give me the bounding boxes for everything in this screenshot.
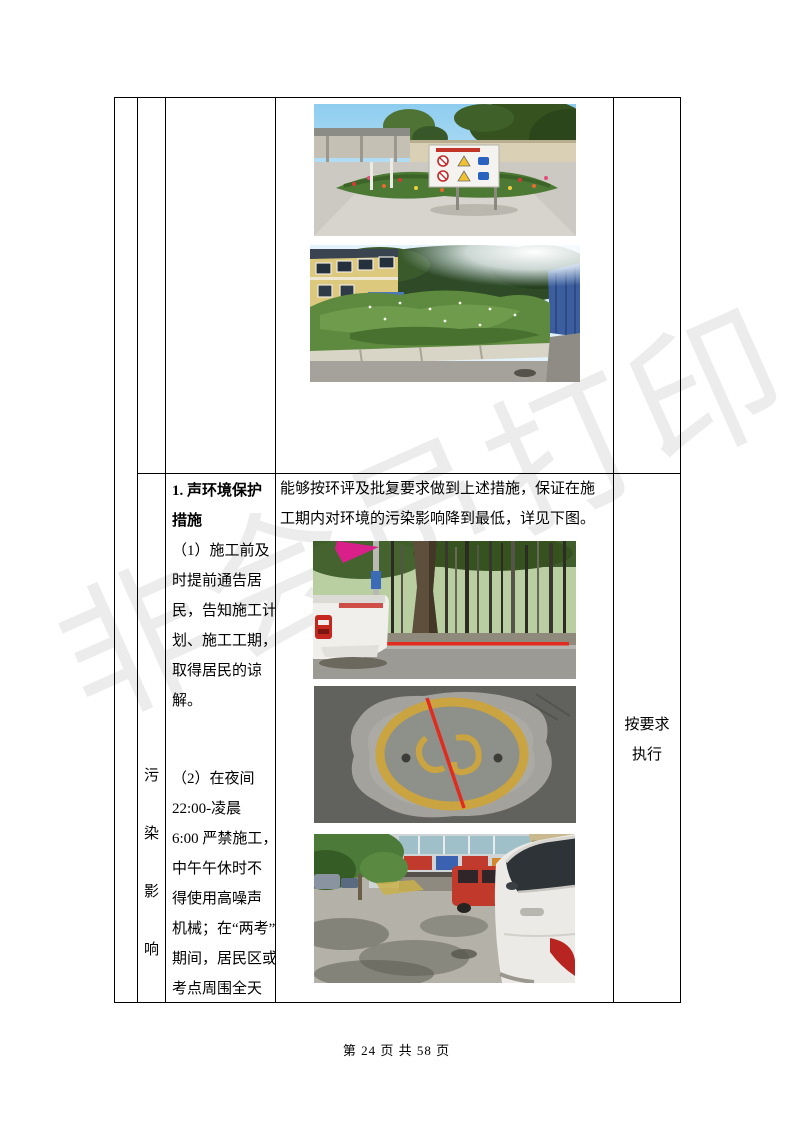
measures-item2-line: 6:00 严禁施工， xyxy=(172,824,272,854)
measures-heading-line: 1. 声环境保护 xyxy=(172,476,272,506)
measures-item1-line: 解。 xyxy=(172,686,272,716)
table-cell-empty-r1c2 xyxy=(138,98,166,474)
vertical-label-char: 影 xyxy=(138,882,165,940)
measures-item2-line: 22:00-凌晨 xyxy=(172,794,272,824)
table-cell-photos-row1 xyxy=(276,98,614,474)
measures-item1-line: 时提前通告居 xyxy=(172,566,272,596)
page-footer: 第 24 页 共 58 页 xyxy=(0,1040,793,1059)
table-cell-status: 按要求 执行 xyxy=(614,474,680,1002)
measures-item2-line: 机械；在“两考” xyxy=(172,914,272,944)
status-line: 执行 xyxy=(614,740,680,770)
measures-item1-line: 取得居民的谅 xyxy=(172,656,272,686)
photo-street-white-car xyxy=(314,834,575,983)
measures-item2-line: 中午午休时不 xyxy=(172,854,272,884)
document-page: { "document": { "watermark_text": "非会员打印… xyxy=(0,0,793,1122)
vertical-label-char: 污 xyxy=(138,766,165,824)
status-line: 按要求 xyxy=(614,710,680,740)
report-table: 污 染 影 响 1. 声环境保护 措施 （1）施工前及 时提前通告居 民，告知施… xyxy=(114,97,681,1003)
table-cell-empty-r1c3 xyxy=(166,98,276,474)
photo-garden-safety-sign xyxy=(314,104,576,236)
table-cell-implementation: 能够按环评及批复要求做到上述措施，保证在施 工期内对环境的污染影响降到最低，详见… xyxy=(276,474,614,1002)
implementation-paragraph-line: 能够按环评及批复要求做到上述措施，保证在施 xyxy=(276,474,613,504)
table-cell-measures: 1. 声环境保护 措施 （1）施工前及 时提前通告居 民，告知施工计 划、施工工… xyxy=(166,474,276,1002)
photo-forest-truck-redline xyxy=(313,541,576,679)
implementation-paragraph-line: 工期内对环境的污染影响降到最低，详见下图。 xyxy=(276,504,613,534)
measures-item2-line: 得使用高噪声 xyxy=(172,884,272,914)
white-car xyxy=(495,834,575,983)
vertical-label-char: 响 xyxy=(138,940,165,998)
table-cell-row-label: 污 染 影 响 xyxy=(138,474,166,1002)
red-vehicle xyxy=(452,866,502,913)
measures-item1-line: 划、施工工期， xyxy=(172,626,272,656)
measures-item2-line: （2）在夜间 xyxy=(172,764,272,794)
measures-item2-line: 考点周围全天 xyxy=(172,974,272,1002)
photo-manhole-redline xyxy=(314,686,576,823)
measures-item2-line: 期间，居民区或 xyxy=(172,944,272,974)
measures-item1-line: 民，告知施工计 xyxy=(172,596,272,626)
table-cell-empty-r1c5 xyxy=(614,98,680,474)
vertical-label-char: 染 xyxy=(138,824,165,882)
table-cell-left-margin xyxy=(115,98,138,1002)
measures-heading-line: 措施 xyxy=(172,506,272,536)
photo-building-meadow xyxy=(310,245,580,382)
measures-item1-line: （1）施工前及 xyxy=(172,536,272,566)
